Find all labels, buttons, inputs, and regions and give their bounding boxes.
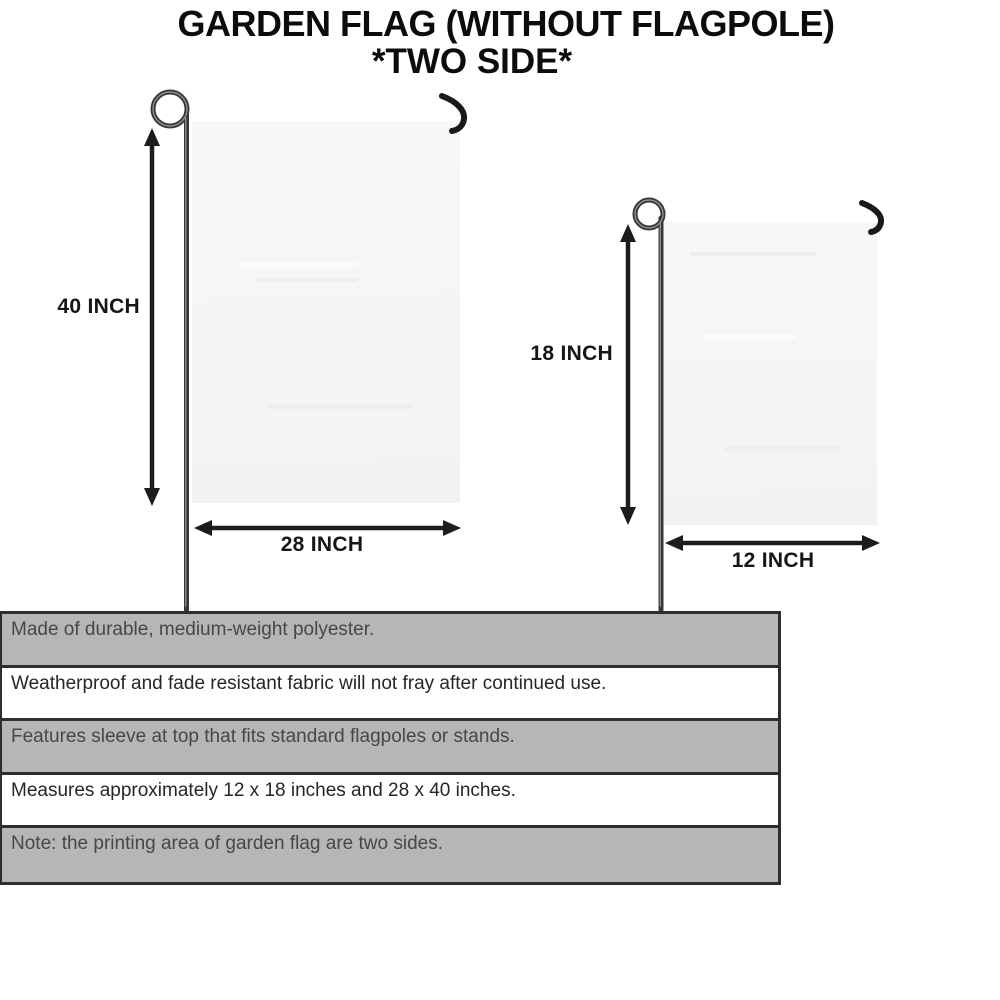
feature-table: Made of durable, medium-weight polyester… <box>0 611 781 885</box>
large-flag-width-label: 28 INCH <box>242 533 402 557</box>
feature-row: Measures approximately 12 x 18 inches an… <box>2 775 778 829</box>
small-flag-width-label: 12 INCH <box>693 549 853 573</box>
feature-text: Note: the printing area of garden flag a… <box>11 833 443 854</box>
feature-row: Note: the printing area of garden flag a… <box>2 828 778 882</box>
large-pole-loop-highlight <box>153 92 187 126</box>
garden-flag-infographic: GARDEN FLAG (WITHOUT FLAGPOLE) *TWO SIDE… <box>0 0 1000 1000</box>
feature-text: Measures approximately 12 x 18 inches an… <box>11 780 516 801</box>
arrowhead-left-icon <box>194 520 212 536</box>
feature-text: Made of durable, medium-weight polyester… <box>11 619 374 640</box>
small-pole-hook-icon <box>862 203 881 232</box>
arrowhead-up-icon <box>144 128 160 146</box>
arrowhead-right-icon <box>862 535 880 551</box>
arrowhead-left-icon <box>665 535 683 551</box>
feature-row: Made of durable, medium-weight polyester… <box>2 614 778 668</box>
feature-row: Weatherproof and fade resistant fabric w… <box>2 668 778 722</box>
arrowhead-down-icon <box>620 507 636 525</box>
small-pole-loop-highlight <box>635 200 663 228</box>
large-pole-hook-icon <box>442 96 464 131</box>
arrowhead-down-icon <box>144 488 160 506</box>
feature-text: Weatherproof and fade resistant fabric w… <box>11 673 606 694</box>
arrowhead-right-icon <box>443 520 461 536</box>
arrowhead-up-icon <box>620 224 636 242</box>
feature-row: Features sleeve at top that fits standar… <box>2 721 778 775</box>
small-flag-height-label: 18 INCH <box>493 342 613 366</box>
feature-text: Features sleeve at top that fits standar… <box>11 726 515 747</box>
large-flag-height-label: 40 INCH <box>20 295 140 319</box>
